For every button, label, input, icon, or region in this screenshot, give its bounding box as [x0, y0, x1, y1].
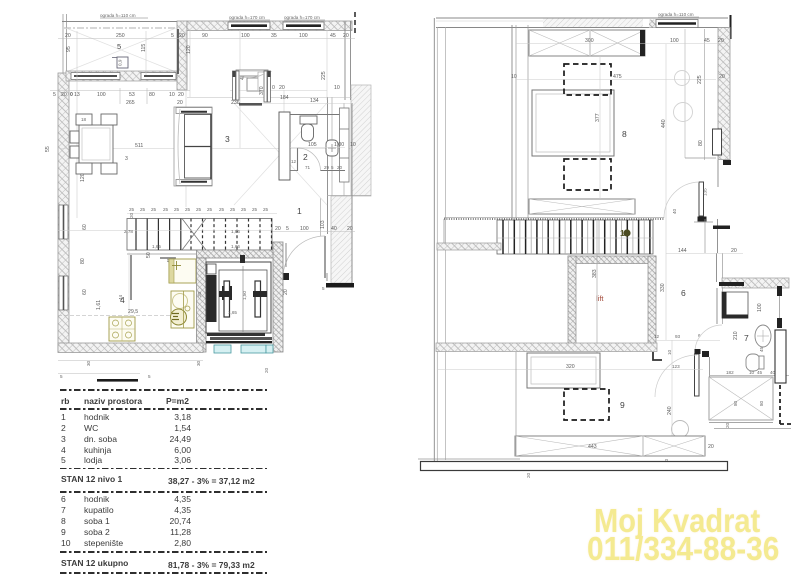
svg-text:330: 330 — [660, 283, 666, 292]
svg-text:25: 25 — [196, 207, 202, 212]
svg-text:120: 120 — [80, 173, 86, 182]
svg-text:5: 5 — [331, 165, 334, 170]
svg-text:20: 20 — [708, 444, 714, 450]
svg-text:377: 377 — [595, 113, 601, 122]
svg-text:265: 265 — [126, 100, 135, 106]
svg-text:5: 5 — [148, 374, 151, 379]
svg-text:20: 20 — [526, 472, 531, 478]
svg-text:10: 10 — [749, 370, 755, 375]
svg-text:5: 5 — [286, 226, 289, 232]
svg-text:40: 40 — [672, 208, 677, 214]
svg-text:ograda h=170 cm: ograda h=170 cm — [229, 15, 265, 20]
svg-text:55: 55 — [45, 146, 51, 152]
svg-text:1,65: 1,65 — [152, 244, 161, 249]
svg-text:ograda h=170 cm: ograda h=170 cm — [284, 15, 320, 20]
svg-text:80: 80 — [80, 258, 86, 264]
svg-text:25: 25 — [129, 207, 135, 212]
svg-text:135: 135 — [703, 188, 708, 196]
svg-text:5: 5 — [117, 42, 121, 51]
svg-text:20: 20 — [719, 74, 725, 80]
svg-text:20: 20 — [61, 92, 67, 98]
svg-text:25: 25 — [140, 207, 146, 212]
svg-text:12: 12 — [654, 334, 660, 339]
svg-text:511: 511 — [135, 143, 143, 149]
svg-text:40: 40 — [331, 226, 337, 232]
svg-text:2: 2 — [303, 152, 308, 162]
svg-text:443: 443 — [588, 444, 597, 450]
svg-text:25: 25 — [174, 207, 180, 212]
svg-text:29,5: 29,5 — [128, 309, 138, 315]
svg-text:1,00: 1,00 — [334, 142, 344, 148]
svg-text:103: 103 — [320, 220, 326, 229]
svg-text:45: 45 — [330, 33, 336, 39]
svg-text:115: 115 — [141, 44, 147, 52]
svg-text:20: 20 — [725, 422, 730, 428]
svg-text:100: 100 — [299, 33, 308, 39]
svg-text:25: 25 — [252, 207, 258, 212]
svg-text:95: 95 — [66, 46, 72, 52]
svg-text:5: 5 — [171, 33, 174, 39]
svg-text:20: 20 — [347, 226, 353, 232]
svg-text:45: 45 — [759, 346, 764, 352]
svg-text:440: 440 — [661, 119, 667, 128]
svg-text:0: 0 — [70, 92, 73, 98]
svg-text:ograda h=110 cm: ograda h=110 cm — [100, 13, 136, 18]
svg-text:240: 240 — [667, 406, 673, 415]
svg-text:20: 20 — [129, 212, 134, 218]
svg-text:1,66: 1,66 — [231, 244, 240, 249]
svg-text:12: 12 — [291, 159, 297, 164]
svg-text:250: 250 — [116, 33, 125, 39]
svg-text:20: 20 — [275, 226, 281, 232]
svg-text:20: 20 — [179, 33, 185, 39]
svg-text:1,65: 1,65 — [228, 310, 237, 315]
svg-text:20: 20 — [337, 165, 343, 170]
svg-text:320: 320 — [566, 364, 575, 370]
svg-text:20: 20 — [197, 291, 202, 297]
svg-text:3: 3 — [225, 134, 230, 144]
svg-text:18: 18 — [81, 117, 87, 122]
svg-text:20: 20 — [718, 38, 724, 44]
svg-text:20: 20 — [65, 33, 71, 39]
svg-text:475: 475 — [613, 74, 622, 80]
svg-text:ograda h=110 cm: ograda h=110 cm — [658, 12, 694, 17]
svg-text:10: 10 — [511, 74, 517, 80]
svg-text:225: 225 — [697, 75, 703, 84]
svg-text:25: 25 — [151, 207, 157, 212]
svg-text:1,61: 1,61 — [96, 300, 102, 310]
svg-text:100: 100 — [670, 38, 679, 44]
svg-text:300: 300 — [585, 38, 594, 44]
svg-text:210: 210 — [733, 331, 739, 340]
svg-text:0,9: 0,9 — [118, 59, 123, 66]
svg-text:20: 20 — [264, 367, 269, 373]
svg-text:20: 20 — [177, 100, 183, 106]
svg-text:60: 60 — [82, 289, 88, 295]
svg-text:60: 60 — [82, 224, 88, 230]
svg-text:35: 35 — [271, 33, 277, 39]
svg-text:236: 236 — [231, 100, 240, 106]
svg-text:44: 44 — [118, 294, 123, 300]
svg-text:370: 370 — [259, 86, 265, 95]
svg-text:13: 13 — [74, 92, 80, 98]
svg-text:71: 71 — [305, 165, 311, 170]
svg-text:5: 5 — [60, 374, 63, 379]
svg-text:10: 10 — [334, 85, 340, 91]
svg-text:80: 80 — [759, 400, 764, 406]
svg-text:20: 20 — [178, 92, 184, 98]
svg-text:25: 25 — [185, 207, 191, 212]
svg-text:45: 45 — [757, 370, 763, 375]
svg-text:182: 182 — [726, 370, 734, 375]
svg-text:3: 3 — [125, 156, 128, 162]
svg-text:1,86: 1,86 — [231, 229, 240, 234]
svg-text:6: 6 — [681, 288, 686, 298]
svg-text:25: 25 — [241, 207, 247, 212]
svg-text:25: 25 — [230, 207, 236, 212]
svg-text:25: 25 — [219, 207, 225, 212]
svg-text:9: 9 — [620, 400, 625, 410]
svg-text:134: 134 — [310, 98, 319, 104]
svg-text:144: 144 — [678, 248, 687, 254]
svg-text:8: 8 — [622, 129, 627, 139]
svg-text:45: 45 — [704, 38, 710, 44]
svg-text:5: 5 — [322, 286, 325, 291]
svg-text:30: 30 — [86, 360, 91, 366]
svg-text:123: 123 — [672, 364, 680, 369]
svg-text:80: 80 — [733, 400, 738, 406]
svg-text:225: 225 — [321, 71, 327, 80]
svg-text:2,78: 2,78 — [124, 229, 133, 234]
svg-text:383: 383 — [592, 269, 598, 278]
svg-text:80: 80 — [698, 140, 704, 146]
svg-text:20: 20 — [343, 33, 349, 39]
svg-text:5: 5 — [53, 92, 56, 98]
svg-text:25: 25 — [207, 207, 213, 212]
svg-text:25: 25 — [163, 207, 169, 212]
svg-text:80: 80 — [149, 92, 155, 98]
svg-text:20: 20 — [279, 85, 285, 91]
svg-text:120: 120 — [186, 45, 192, 54]
svg-text:0: 0 — [272, 85, 275, 91]
svg-text:53: 53 — [129, 92, 135, 98]
svg-text:100: 100 — [300, 226, 309, 232]
svg-text:7: 7 — [744, 333, 749, 343]
svg-text:105: 105 — [308, 142, 317, 148]
svg-text:100: 100 — [241, 33, 250, 39]
svg-text:1: 1 — [297, 206, 302, 216]
svg-text:10: 10 — [350, 142, 356, 148]
svg-text:90: 90 — [202, 33, 208, 39]
svg-text:30: 30 — [196, 360, 201, 366]
svg-text:20: 20 — [283, 289, 289, 295]
svg-text:10: 10 — [169, 92, 175, 98]
svg-text:50: 50 — [146, 252, 152, 258]
svg-text:29: 29 — [324, 165, 330, 170]
svg-text:100: 100 — [757, 303, 763, 312]
svg-text:100: 100 — [97, 92, 106, 98]
svg-text:25: 25 — [263, 207, 269, 212]
svg-text:184: 184 — [280, 95, 289, 101]
svg-text:20: 20 — [731, 248, 737, 254]
svg-text:1,50: 1,50 — [242, 291, 247, 300]
svg-text:93: 93 — [675, 334, 681, 339]
svg-text:10: 10 — [667, 349, 672, 355]
